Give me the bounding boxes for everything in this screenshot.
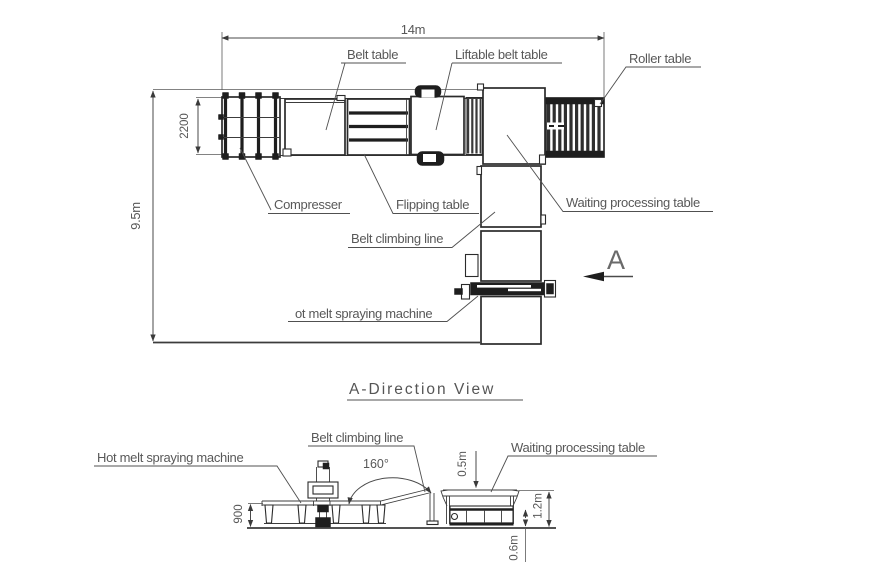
section-view: A-Direction View	[94, 381, 657, 562]
side-box	[466, 255, 479, 277]
dimension-2200: 2200	[179, 98, 224, 155]
dim-14m-text: 14m	[401, 22, 425, 37]
dim-900-text: 900	[233, 504, 245, 523]
dimension-0-5m: 0.5m	[457, 451, 476, 488]
dim-9-5m-text: 9.5m	[128, 202, 143, 230]
roller-table-label: Roller table	[629, 51, 691, 66]
dim-0-5m-text: 0.5m	[457, 451, 469, 477]
dimension-1-2m: 1.2m	[519, 491, 554, 527]
waiting-processing-table-label-top: Waiting processing table	[566, 195, 700, 210]
dim-2200-text: 2200	[179, 113, 191, 139]
section-title: A-Direction View	[347, 381, 523, 400]
direction-arrowhead	[583, 272, 604, 281]
dimension-900: 900	[233, 504, 263, 527]
flipping-table-unit	[348, 99, 410, 155]
belt-table-unit	[283, 96, 345, 157]
belt-climbing-line-label-section: Belt climbing line	[311, 430, 403, 445]
section-climbing-ramp	[381, 489, 438, 525]
liftable-belt-table-label: Liftable belt table	[455, 47, 548, 62]
label-hot-melt-spraying-machine-top: ot melt spraying machine	[288, 296, 478, 322]
compresser-label: Compresser	[274, 197, 343, 212]
belt-climbing-column	[466, 166, 546, 344]
belt-climbing-line-label-top: Belt climbing line	[351, 231, 443, 246]
roller-strip	[466, 98, 482, 155]
top-view: 14m 9.5m 2200	[128, 22, 713, 344]
label-waiting-processing-table-section: Waiting processing table	[491, 440, 657, 492]
label-roller-table: Roller table	[600, 51, 701, 104]
section-waiting-table	[441, 490, 519, 525]
waiting-processing-table-unit	[478, 84, 546, 164]
section-title-text: A-Direction View	[349, 381, 495, 398]
waiting-processing-table-label-section: Waiting processing table	[511, 440, 645, 455]
engineering-drawing: 14m 9.5m 2200	[0, 0, 880, 580]
cad-drawing-page: 14m 9.5m 2200	[0, 0, 880, 580]
label-belt-climbing-line-top: Belt climbing line	[348, 212, 495, 248]
hot-melt-spraying-machine-label-section: Hot melt spraying machine	[97, 450, 243, 465]
compressor-unit	[219, 93, 281, 160]
dim-0-6m-text: 0.6m	[509, 535, 521, 561]
hot-melt-spraying-machine-label-top: ot melt spraying machine	[295, 306, 432, 321]
view-direction-arrow: A	[583, 245, 633, 281]
belt-table-label: Belt table	[347, 47, 398, 62]
label-hot-melt-spraying-machine-section: Hot melt spraying machine	[94, 450, 301, 503]
gantry-foot	[316, 518, 331, 528]
roller-table-unit	[540, 98, 605, 164]
dim-1-2m-text: 1.2m	[533, 493, 545, 519]
dim-160-text: 160°	[363, 457, 389, 471]
direction-marker-letter: A	[607, 245, 625, 275]
flipping-table-label: Flipping table	[396, 197, 469, 212]
